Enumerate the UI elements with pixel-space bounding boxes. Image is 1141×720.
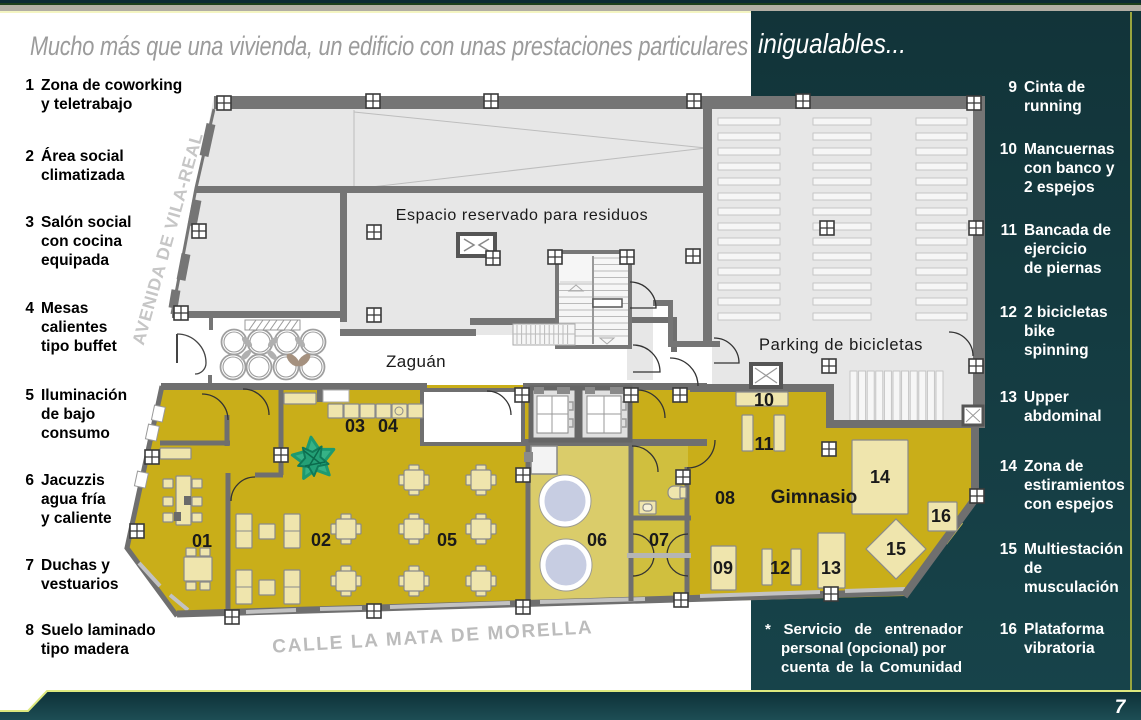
svg-text:13: 13 xyxy=(821,558,841,578)
svg-text:01: 01 xyxy=(192,531,212,551)
svg-text:12: 12 xyxy=(770,558,790,578)
svg-text:06: 06 xyxy=(587,530,607,550)
svg-text:16: 16 xyxy=(931,506,951,526)
svg-text:04: 04 xyxy=(378,416,398,436)
svg-text:14: 14 xyxy=(870,467,890,487)
svg-text:09: 09 xyxy=(713,558,733,578)
svg-text:Parking de bicicletas: Parking de bicicletas xyxy=(759,336,923,354)
svg-text:07: 07 xyxy=(649,530,669,550)
svg-text:Gimnasio: Gimnasio xyxy=(771,487,858,508)
svg-text:05: 05 xyxy=(437,530,457,550)
svg-text:11: 11 xyxy=(754,434,773,454)
svg-text:10: 10 xyxy=(754,390,774,410)
svg-text:Zaguán: Zaguán xyxy=(386,352,446,371)
svg-text:08: 08 xyxy=(715,488,735,508)
svg-text:15: 15 xyxy=(886,539,906,559)
svg-text:02: 02 xyxy=(311,530,331,550)
svg-text:Espacio reservado para residuo: Espacio reservado para residuos xyxy=(396,207,649,224)
svg-text:03: 03 xyxy=(345,416,365,436)
